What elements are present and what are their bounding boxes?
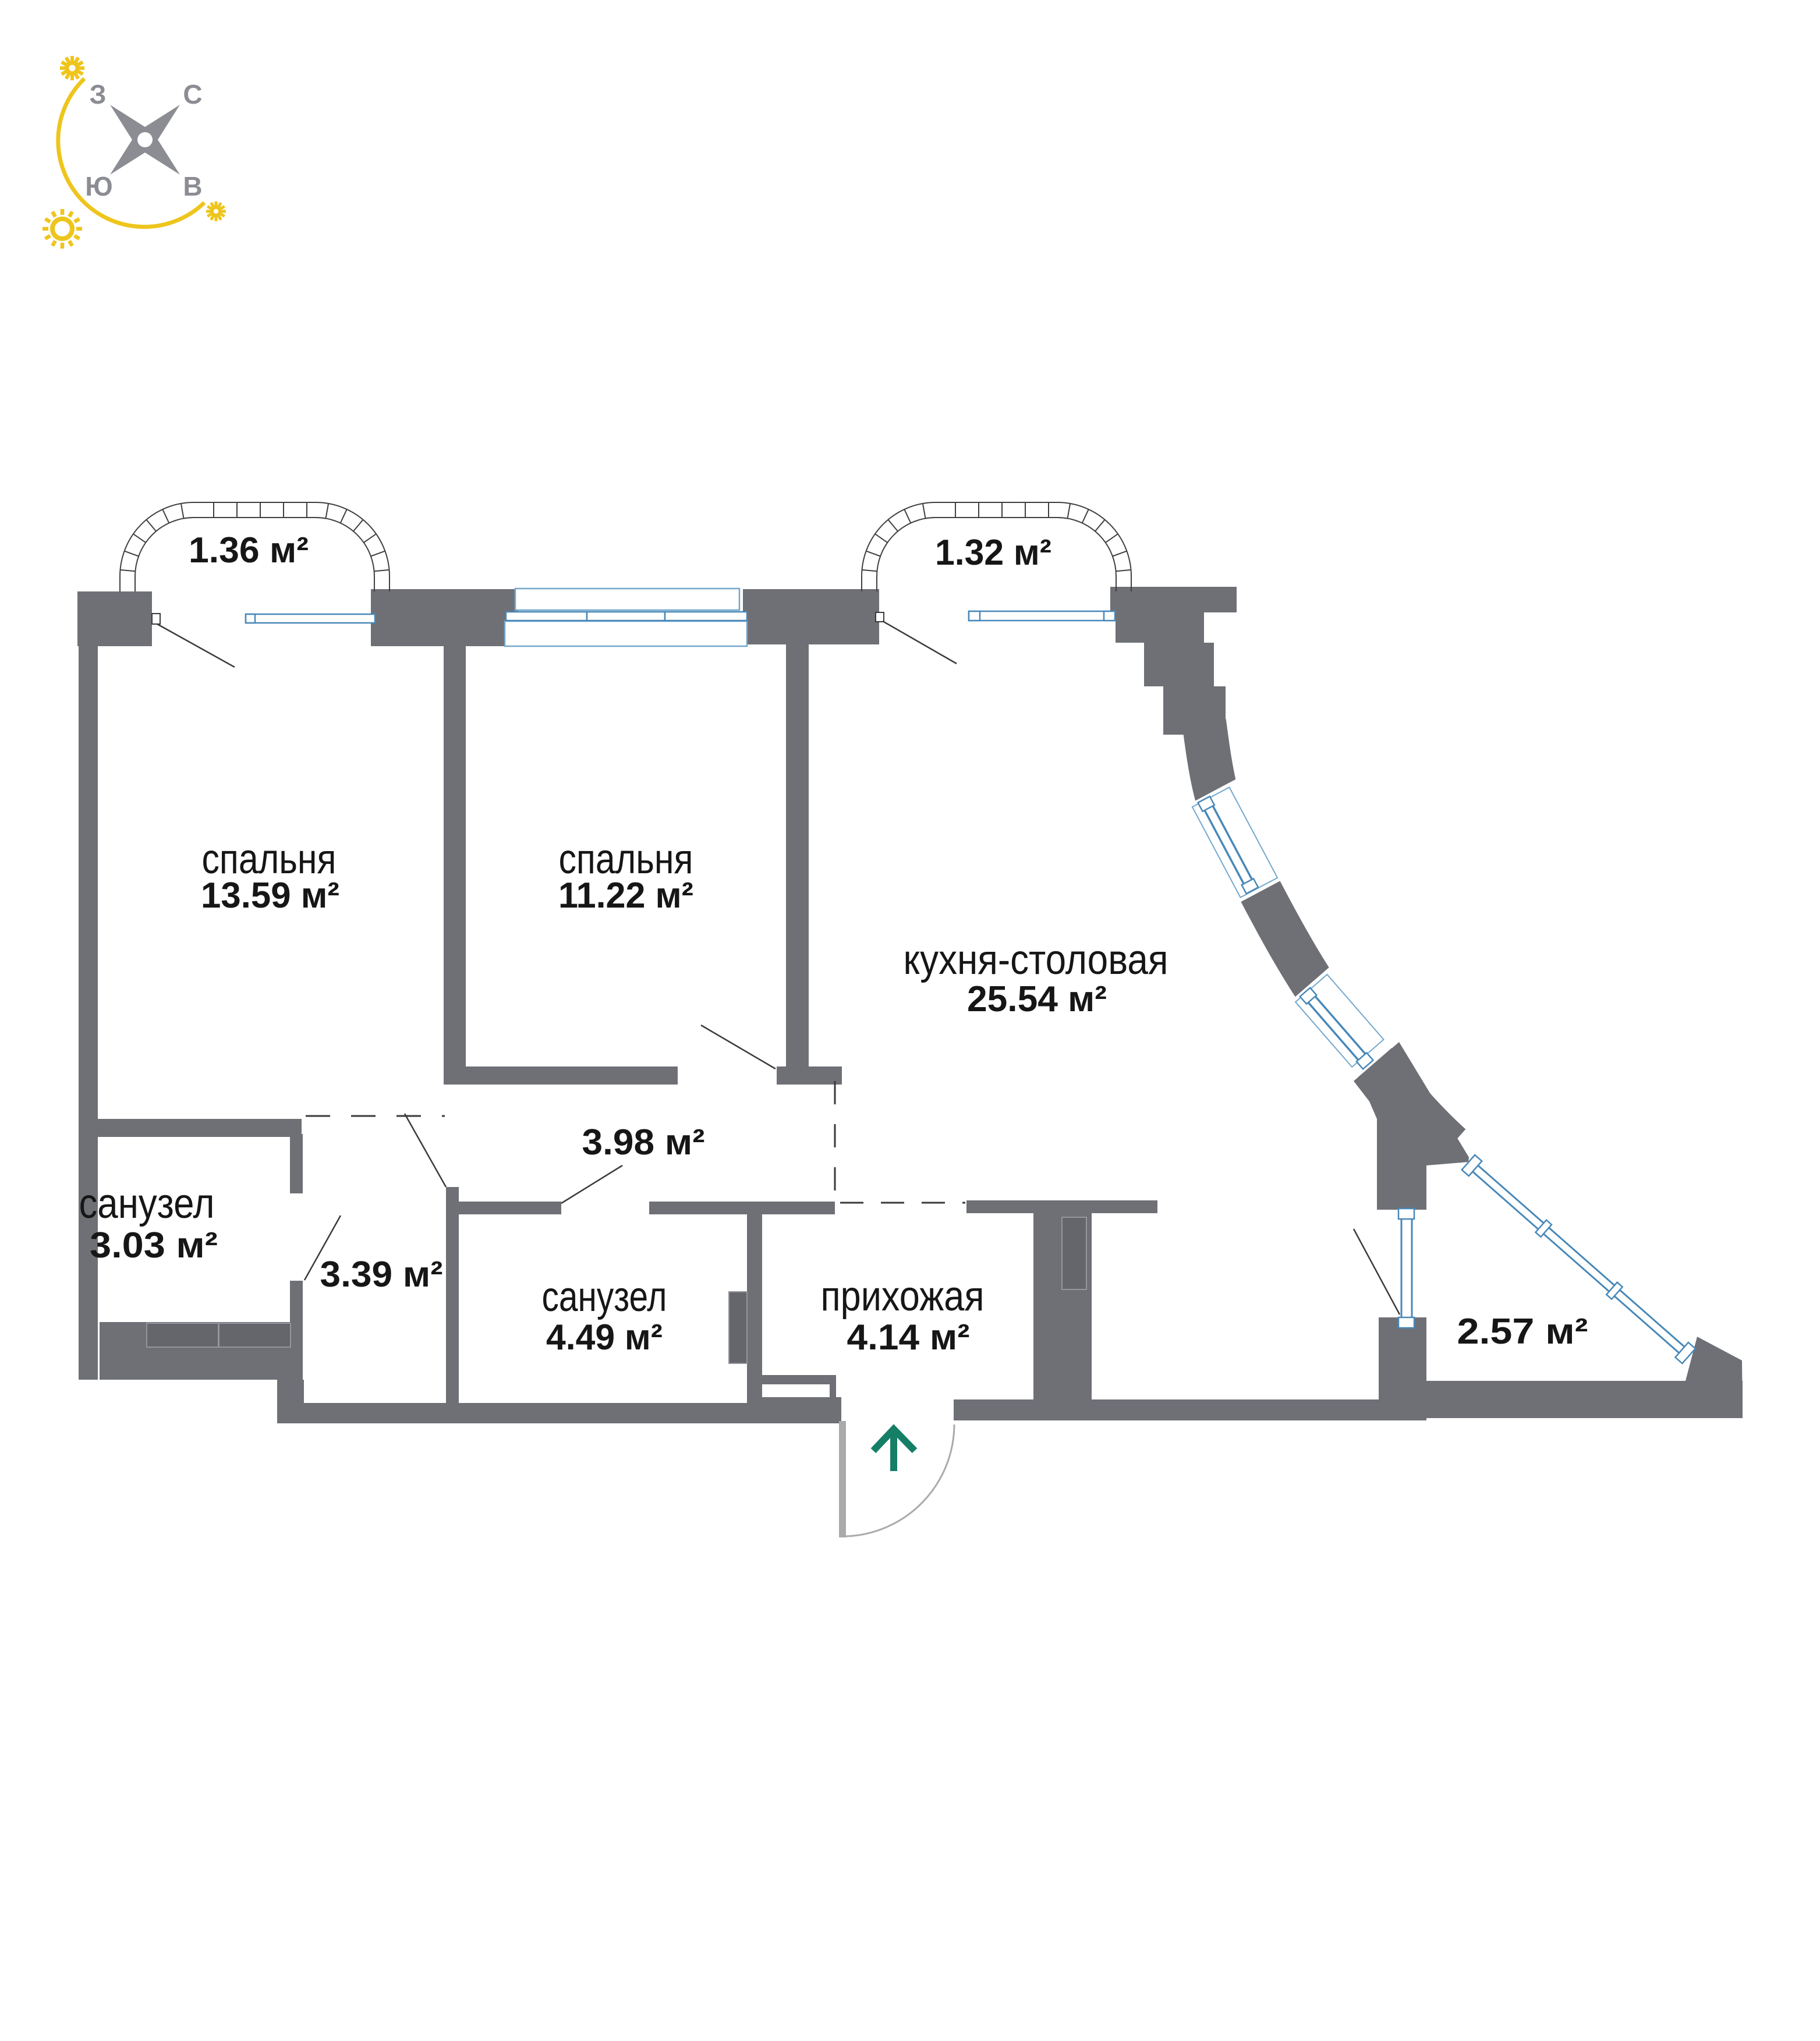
- svg-text:3.03 м²: 3.03 м²: [90, 1225, 218, 1266]
- svg-text:13.59 м²: 13.59 м²: [201, 876, 339, 916]
- svg-text:11.22 м²: 11.22 м²: [558, 876, 693, 916]
- svg-text:В: В: [183, 171, 202, 201]
- svg-text:прихожая: прихожая: [821, 1273, 985, 1320]
- svg-text:1.36 м²: 1.36 м²: [189, 530, 309, 571]
- svg-text:З: З: [90, 79, 107, 109]
- svg-text:4.49 м²: 4.49 м²: [546, 1317, 663, 1358]
- svg-text:4.14 м²: 4.14 м²: [847, 1317, 970, 1358]
- svg-text:санузел: санузел: [79, 1181, 215, 1227]
- svg-text:Ю: Ю: [85, 171, 112, 201]
- svg-text:кухня-столовая: кухня-столовая: [904, 937, 1169, 983]
- svg-text:2.57 м²: 2.57 м²: [1457, 1312, 1588, 1352]
- svg-text:3.98 м²: 3.98 м²: [582, 1122, 705, 1163]
- svg-text:1.32 м²: 1.32 м²: [935, 533, 1051, 573]
- svg-text:санузел: санузел: [542, 1274, 667, 1320]
- svg-text:25.54 м²: 25.54 м²: [967, 979, 1107, 1019]
- svg-text:3.39 м²: 3.39 м²: [320, 1255, 443, 1295]
- svg-text:С: С: [183, 79, 202, 109]
